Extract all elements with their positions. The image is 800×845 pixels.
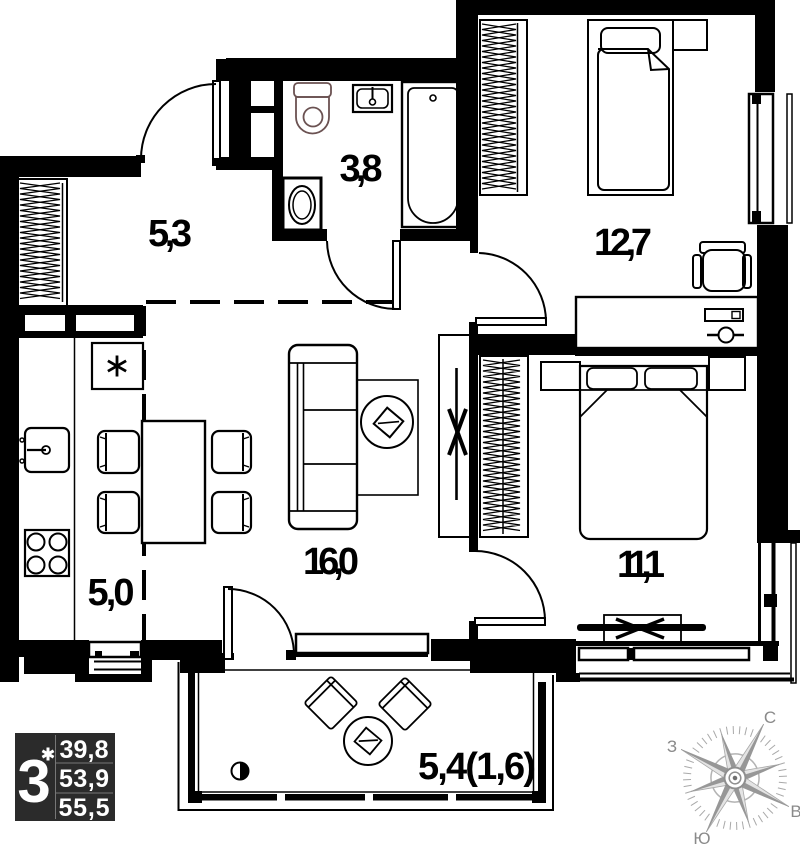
svg-text:В: В xyxy=(790,802,800,821)
svg-text:3: 3 xyxy=(17,748,50,815)
svg-text:39,8: 39,8 xyxy=(60,736,109,764)
svg-text:5,0: 5,0 xyxy=(88,572,135,614)
svg-text:5,3: 5,3 xyxy=(148,213,192,255)
svg-text:55,5: 55,5 xyxy=(59,794,110,822)
svg-text:Ю: Ю xyxy=(693,829,710,845)
svg-text:53,9: 53,9 xyxy=(59,765,109,793)
svg-text:3,8: 3,8 xyxy=(340,148,383,190)
svg-text:11,1: 11,1 xyxy=(617,544,665,586)
svg-text:З: З xyxy=(667,737,677,756)
svg-text:12,7: 12,7 xyxy=(594,222,652,264)
svg-text:16,0: 16,0 xyxy=(303,541,359,583)
svg-text:С: С xyxy=(764,708,776,727)
svg-text:5,4(1,6): 5,4(1,6) xyxy=(418,746,536,788)
